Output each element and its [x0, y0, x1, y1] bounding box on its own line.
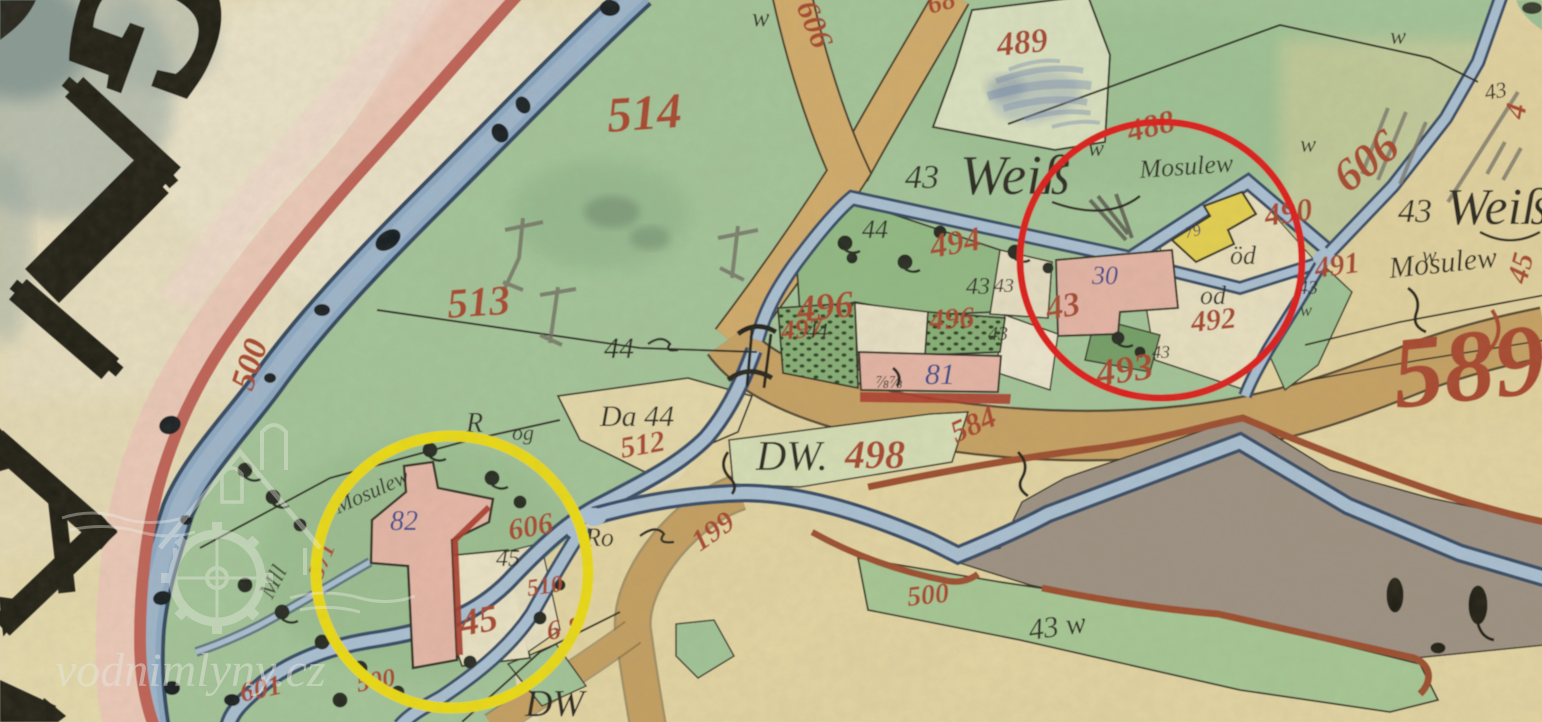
svg-text:vodnimlyny.cz: vodnimlyny.cz [55, 644, 326, 697]
